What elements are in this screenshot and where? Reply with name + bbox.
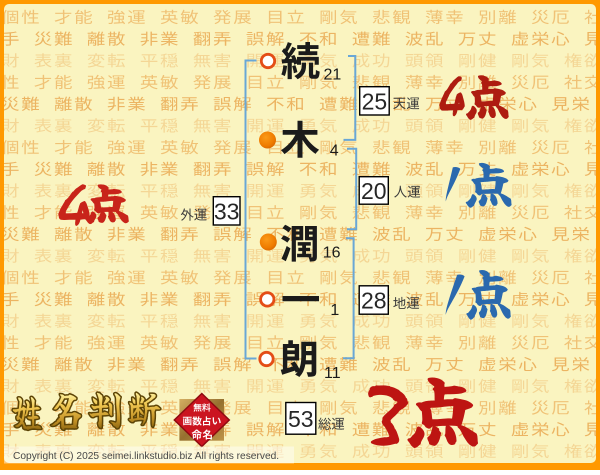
svg-text:25: 25 [362, 88, 388, 114]
svg-text:53: 53 [288, 406, 314, 432]
svg-text:28: 28 [361, 288, 387, 314]
svg-text:1: 1 [330, 302, 339, 319]
svg-text:11: 11 [324, 365, 341, 382]
svg-text:20: 20 [361, 178, 387, 204]
svg-text:33: 33 [214, 198, 240, 224]
svg-text:16: 16 [323, 244, 341, 261]
svg-text:4: 4 [330, 142, 339, 159]
svg-text:Copyright (C) 2025 seimei.link: Copyright (C) 2025 seimei.linkstudio.biz… [13, 451, 279, 462]
svg-text:21: 21 [324, 66, 342, 83]
